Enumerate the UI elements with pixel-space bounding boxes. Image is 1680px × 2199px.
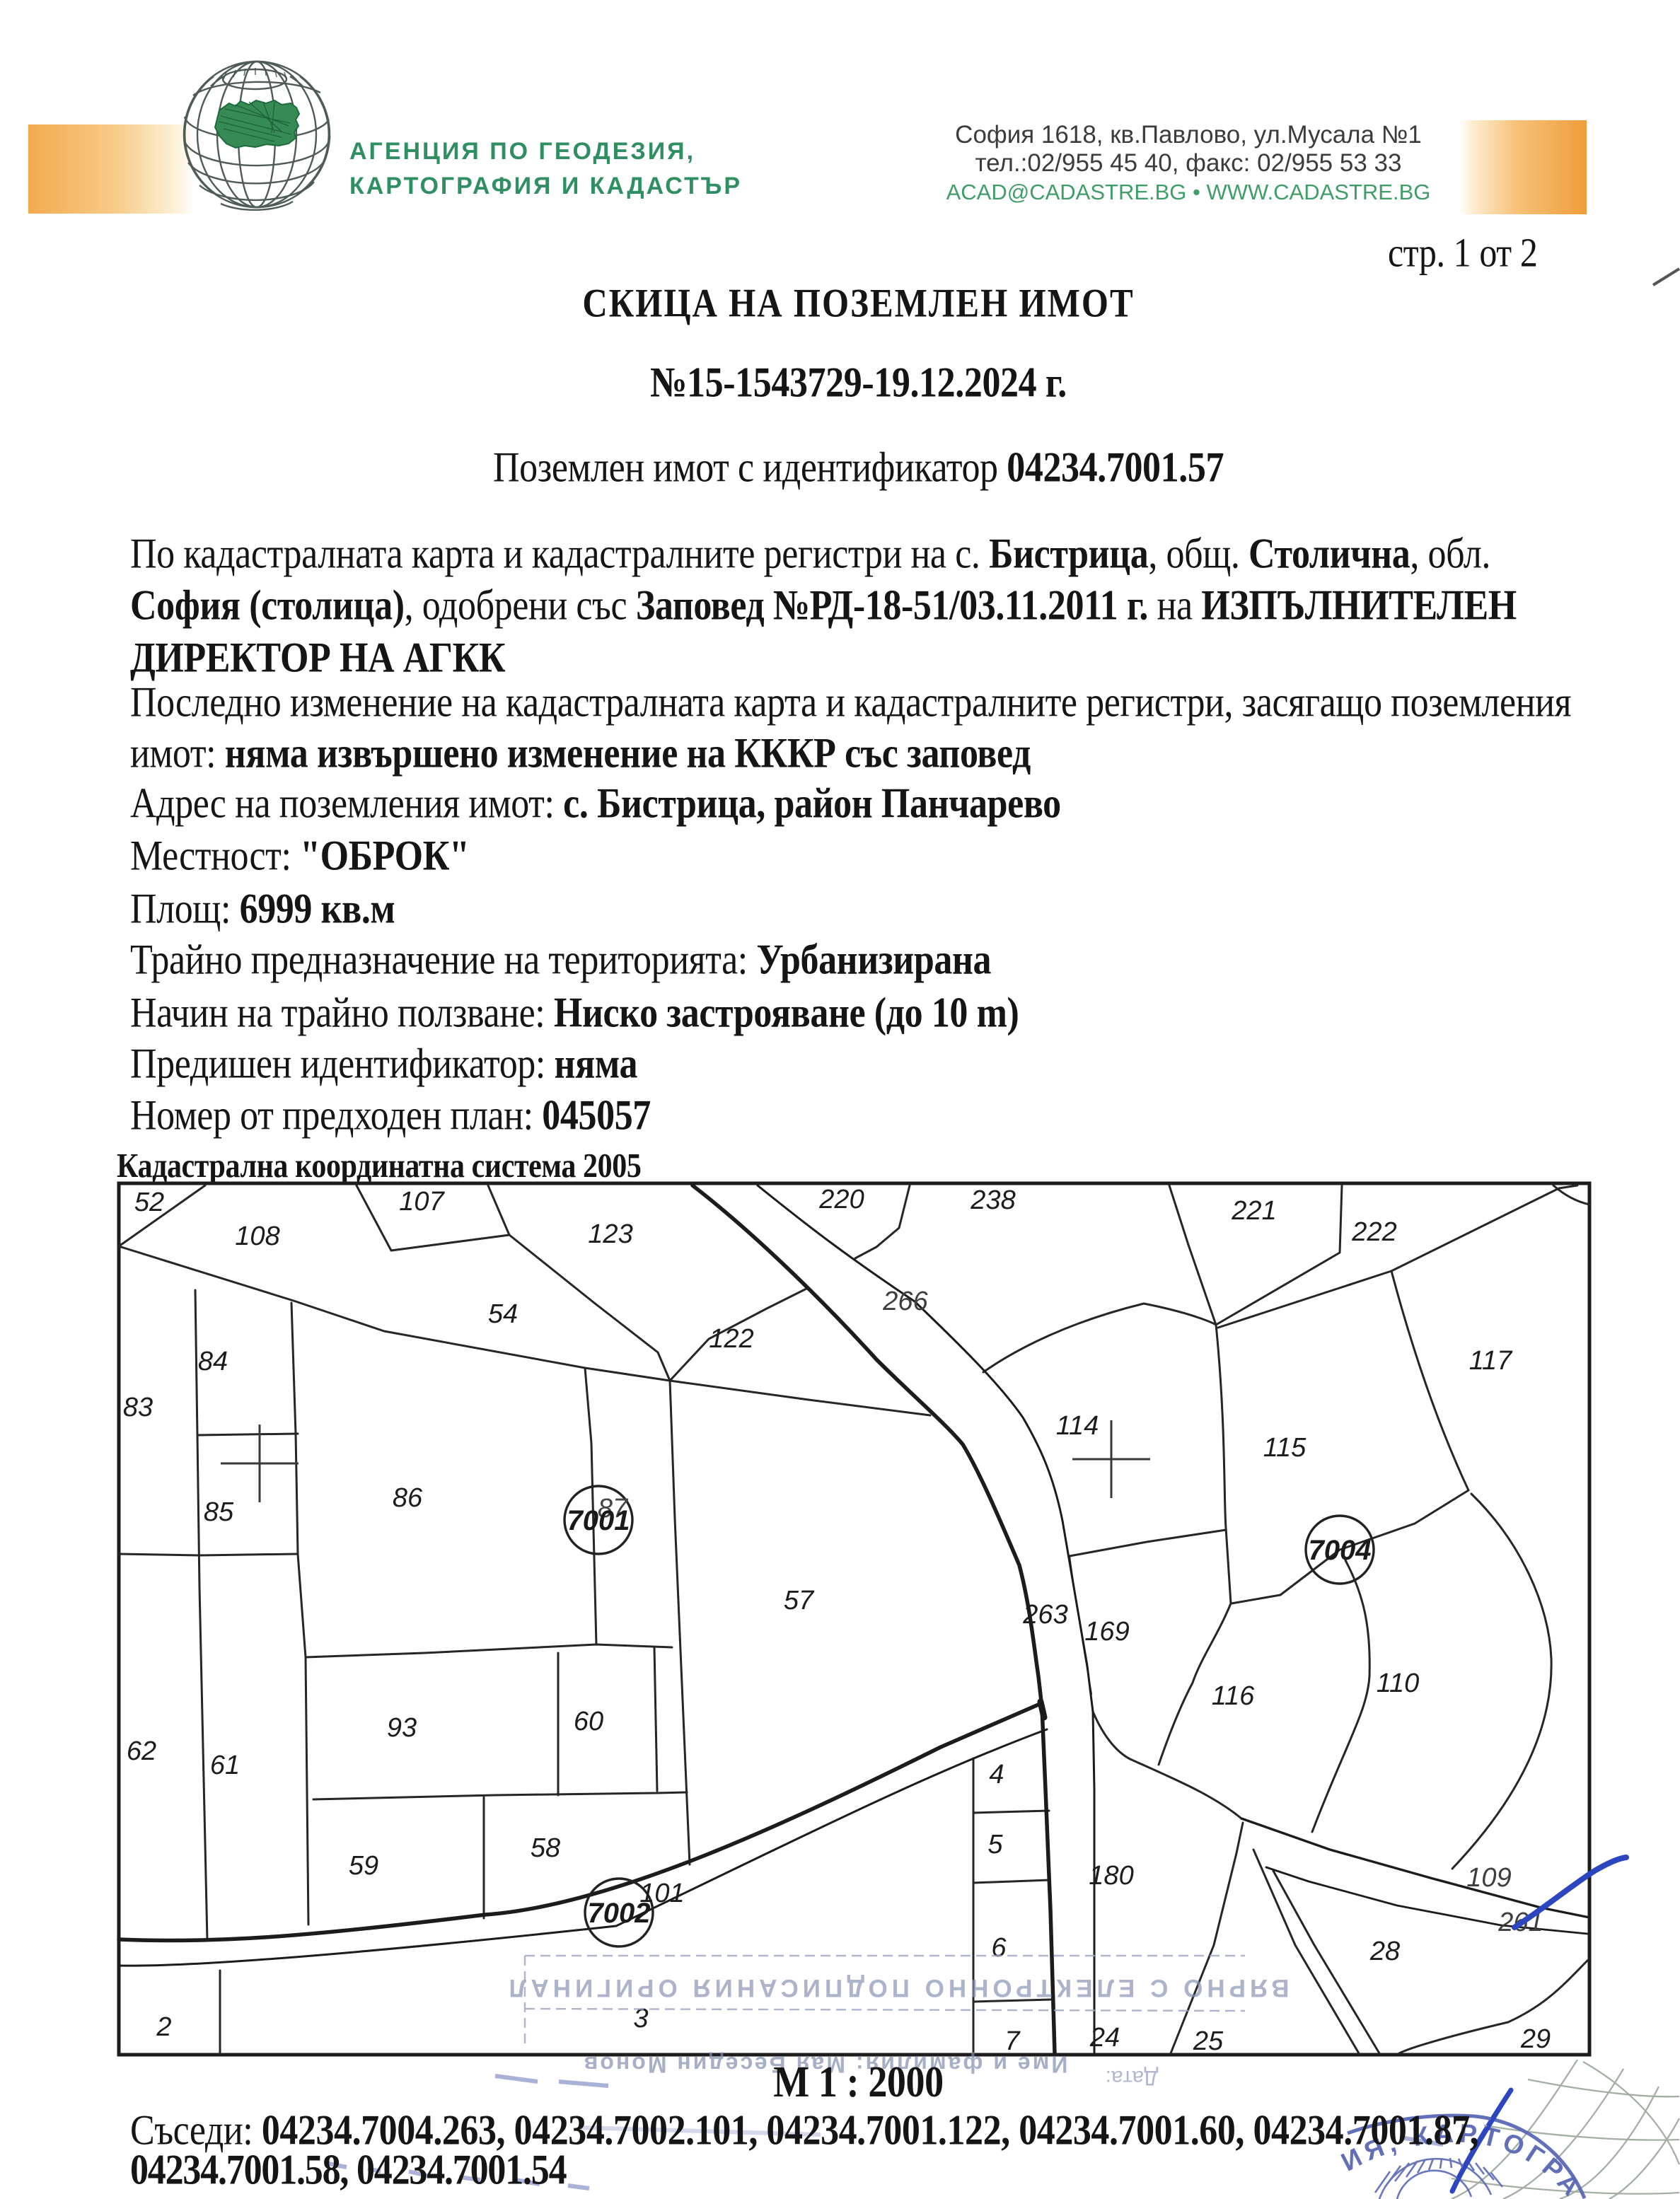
svg-text:59: 59 [349,1851,378,1881]
svg-text:4: 4 [989,1760,1004,1789]
svg-text:2: 2 [156,2012,171,2042]
svg-text:6: 6 [991,1933,1007,1963]
svg-text:110: 110 [1377,1669,1420,1698]
svg-text:86: 86 [393,1483,423,1513]
svg-text:238: 238 [970,1185,1015,1215]
svg-text:24: 24 [1089,2023,1120,2053]
svg-text:93: 93 [387,1713,417,1743]
svg-text:ВЯРНО С ЕЛЕКТРОННО ПОДПИСАНИЯ: ВЯРНО С ЕЛЕКТРОННО ПОДПИСАНИЯ ОРИГИНАЛ [504,1974,1289,2002]
svg-text:222: 222 [1351,1217,1396,1247]
svg-text:5: 5 [987,1830,1003,1859]
svg-text:169: 169 [1084,1617,1129,1647]
svg-text:123: 123 [588,1219,632,1249]
svg-text:62: 62 [127,1736,156,1766]
svg-text:7001: 7001 [567,1505,630,1536]
svg-text:25: 25 [1193,2026,1224,2056]
svg-text:84: 84 [198,1347,228,1376]
svg-text:109: 109 [1466,1863,1511,1893]
svg-text:28: 28 [1369,1937,1400,1966]
svg-text:117: 117 [1469,1346,1513,1376]
svg-text:107: 107 [399,1187,445,1217]
svg-text:263: 263 [1022,1600,1067,1630]
svg-text:7004: 7004 [1309,1535,1372,1566]
svg-text:60: 60 [574,1707,603,1736]
svg-text:83: 83 [123,1393,153,1422]
svg-text:115: 115 [1263,1433,1307,1463]
svg-text:7: 7 [1004,2026,1021,2056]
svg-text:54: 54 [488,1299,518,1329]
svg-text:7002: 7002 [588,1898,651,1929]
svg-text:85: 85 [204,1497,234,1527]
svg-text:ИЯ, КАРТОГРАФИ: ИЯ, КАРТОГРАФИ [0,0,1589,2199]
svg-text:52: 52 [134,1188,164,1217]
svg-text:180: 180 [1089,1861,1133,1891]
svg-text:266: 266 [882,1287,928,1316]
svg-text:122: 122 [709,1324,753,1354]
svg-text:58: 58 [531,1833,560,1863]
svg-text:221: 221 [1231,1196,1276,1226]
svg-text:114: 114 [1056,1411,1099,1441]
svg-text:220: 220 [818,1185,864,1214]
svg-text:108: 108 [235,1222,279,1251]
svg-text:29: 29 [1520,2024,1551,2054]
svg-text:57: 57 [784,1586,815,1615]
svg-text:116: 116 [1212,1681,1255,1711]
svg-text:61: 61 [210,1751,240,1780]
